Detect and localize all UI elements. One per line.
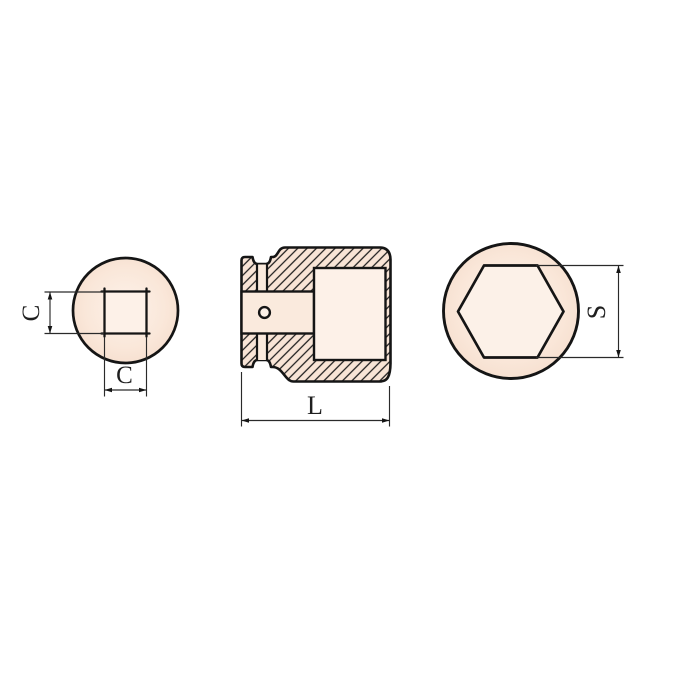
drive-square-fill	[105, 292, 147, 334]
pin-bore-bottom	[257, 333, 267, 360]
pin-bore-top	[257, 265, 267, 293]
dim-label-length: L	[307, 391, 323, 420]
hex-socket-cavity	[314, 268, 386, 360]
longitudinal-section-view: L	[242, 248, 391, 427]
hex-socket-end-view: S	[444, 244, 624, 379]
drawing-canvas: C C	[0, 0, 700, 700]
dim-label-across-flats: S	[582, 305, 611, 319]
socket-technical-drawing: C C	[0, 0, 700, 700]
dim-label-c-height: C	[18, 305, 45, 322]
pin-hole	[259, 307, 270, 318]
square-drive-end-view: C C	[18, 258, 178, 397]
dim-label-c-width: C	[116, 362, 133, 389]
square-drive-cavity	[242, 292, 315, 334]
